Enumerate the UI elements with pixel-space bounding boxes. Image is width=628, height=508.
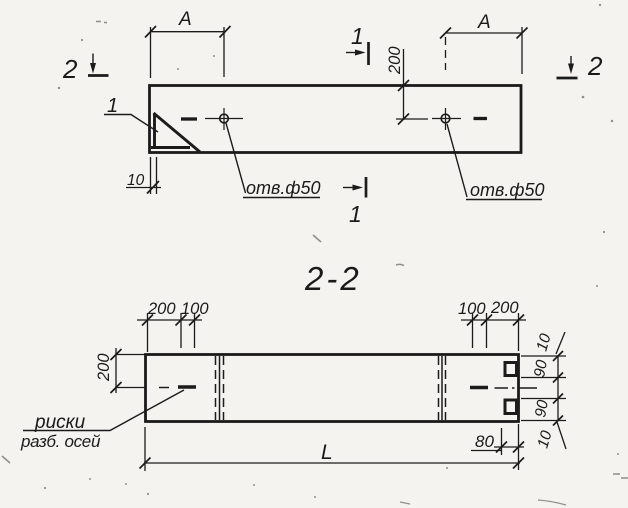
svg-text:80: 80 bbox=[475, 432, 494, 451]
svg-text:200: 200 bbox=[490, 299, 519, 317]
svg-text:200: 200 bbox=[147, 300, 176, 318]
svg-text:10: 10 bbox=[127, 172, 145, 189]
svg-text:отв.ф50: отв.ф50 bbox=[470, 180, 544, 200]
svg-text:разб. осей: разб. осей bbox=[20, 432, 101, 451]
svg-text:1: 1 bbox=[351, 23, 364, 49]
svg-text:отв.ф50: отв.ф50 bbox=[246, 178, 320, 198]
svg-text:200: 200 bbox=[95, 353, 113, 382]
svg-text:2: 2 bbox=[587, 51, 603, 81]
svg-text:L: L bbox=[321, 441, 333, 464]
svg-text:100: 100 bbox=[458, 300, 486, 318]
svg-text:100: 100 bbox=[181, 300, 209, 318]
svg-text:2: 2 bbox=[62, 54, 78, 84]
svg-text:200: 200 bbox=[386, 46, 404, 75]
svg-text:2-2: 2-2 bbox=[304, 260, 362, 297]
svg-text:1: 1 bbox=[349, 201, 362, 227]
svg-text:90: 90 bbox=[532, 398, 552, 418]
svg-text:A: A bbox=[178, 9, 192, 30]
svg-text:1: 1 bbox=[107, 95, 118, 117]
svg-text:A: A bbox=[477, 12, 491, 33]
svg-text:90: 90 bbox=[531, 358, 551, 378]
